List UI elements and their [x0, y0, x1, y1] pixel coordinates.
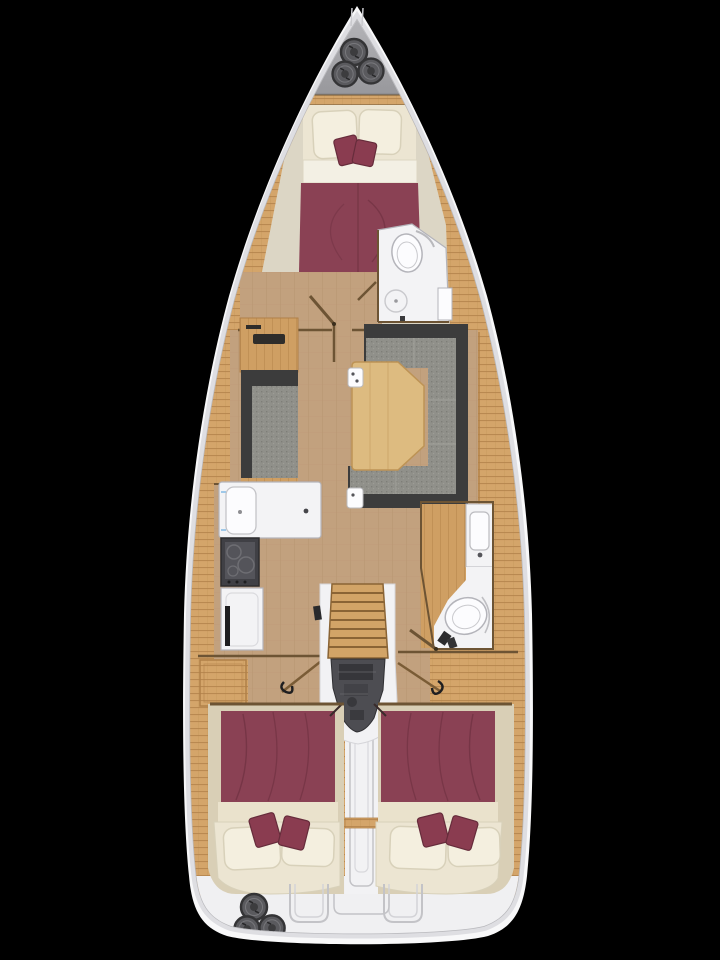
yacht-floorplan: Sailing yacht interior deck plan: [0, 0, 720, 960]
galley-faucet: [304, 509, 309, 514]
cup-holder-dot: [351, 372, 354, 375]
cup-holder-dot: [355, 379, 358, 382]
accent-cushion: [352, 139, 378, 167]
bow-winch-2: [333, 62, 358, 87]
forward-bulkhead: [304, 95, 414, 105]
stove-knob: [236, 581, 239, 584]
fridge-handle: [225, 606, 230, 646]
yacht-floorplan-canvas: Sailing yacht interior deck plan: [0, 0, 720, 960]
cup-holder-dot: [351, 493, 354, 496]
aft-head: [410, 502, 493, 651]
galley-fridge: [221, 588, 263, 650]
aft-cabin-port: [208, 704, 344, 894]
settee-cushion: [252, 386, 298, 478]
aft-cabin-starboard: [374, 704, 514, 894]
companionway-stairs: [328, 584, 388, 658]
sink-drain: [238, 510, 242, 514]
stove-knob: [228, 581, 231, 584]
sideboard-latch: [246, 325, 261, 329]
stove: [221, 538, 259, 586]
berth-sheet-band: [218, 802, 338, 822]
walkway-wood-step: [345, 818, 378, 828]
door-hinge: [434, 647, 438, 651]
drain-dot: [394, 299, 398, 303]
port-sideboard: [240, 318, 298, 372]
sideboard-slot: [253, 334, 285, 344]
head-cabinet: [438, 288, 452, 320]
cup-holder: [347, 488, 363, 508]
engine-detail: [350, 710, 364, 720]
vanity-basin: [470, 512, 489, 550]
stove-knob: [244, 581, 247, 584]
stair-treads: [329, 593, 387, 647]
door-hinge: [332, 322, 336, 326]
vanity-faucet: [478, 553, 483, 558]
berth-drape: [381, 711, 495, 803]
cup-holder: [348, 368, 363, 387]
port-settee: [241, 370, 298, 485]
engine-detail: [347, 697, 357, 707]
berth-drape: [221, 711, 335, 803]
bow-winch-3: [359, 59, 384, 84]
